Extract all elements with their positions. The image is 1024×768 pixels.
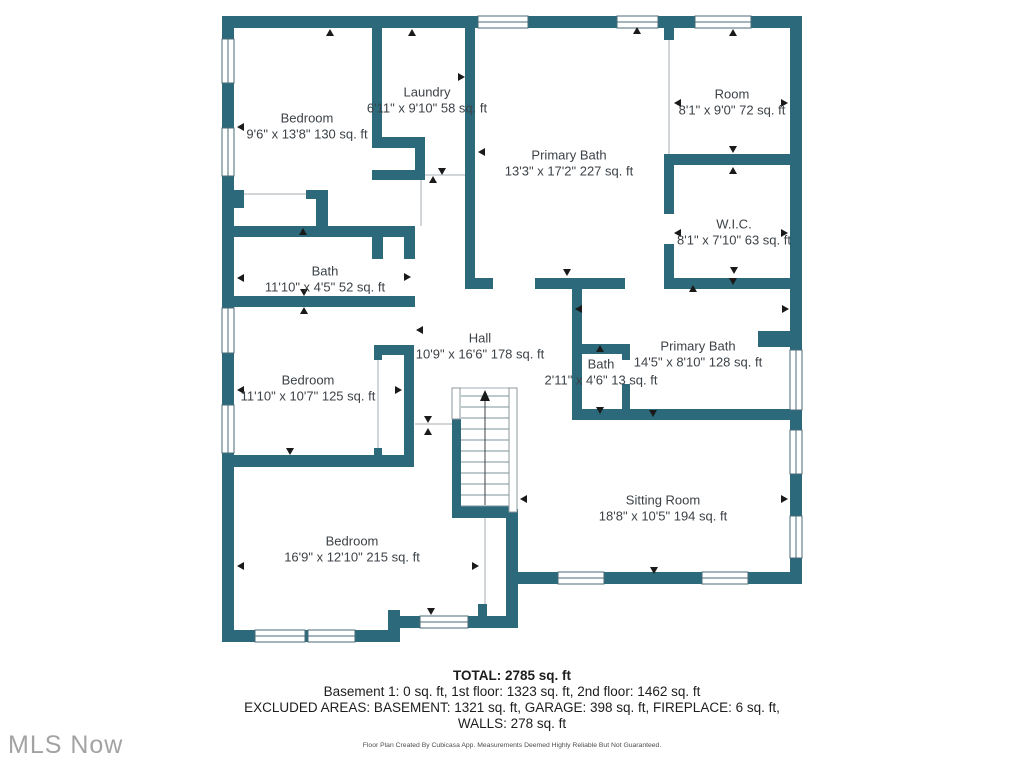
room-name: Laundry: [367, 85, 487, 101]
room-dims: 18'8" x 10'5" 194 sq. ft: [599, 508, 727, 524]
room-dims: 8'1" x 9'0" 72 sq. ft: [679, 102, 786, 118]
room-label-bedroom-bottom-left: Bedroom 16'9" x 12'10" 215 sq. ft: [284, 534, 420, 565]
room-label-sitting-room: Sitting Room 18'8" x 10'5" 194 sq. ft: [599, 493, 727, 524]
room-name: Bedroom: [246, 111, 367, 127]
room-label-bedroom-top-left: Bedroom 9'6" x 13'8" 130 sq. ft: [246, 111, 367, 142]
room-dims: 2'11" x 4'6" 13 sq. ft: [545, 372, 658, 388]
room-name: Bedroom: [284, 534, 420, 550]
room-name: Bath: [265, 264, 385, 280]
room-name: W.I.C.: [677, 217, 791, 233]
room-dims: 16'9" x 12'10" 215 sq. ft: [284, 549, 420, 565]
room-dims: 10'9" x 16'6" 178 sq. ft: [416, 346, 544, 362]
staircase: [452, 388, 517, 512]
room-name: Hall: [416, 331, 544, 347]
room-dims: 11'10" x 10'7" 125 sq. ft: [241, 388, 376, 404]
room-label-primary-bath-small: Primary Bath 14'5" x 8'10" 128 sq. ft: [634, 339, 762, 370]
summary-total: TOTAL: 2785 sq. ft: [0, 668, 1024, 684]
summary-excluded: EXCLUDED AREAS: BASEMENT: 1321 sq. ft, G…: [0, 700, 1024, 716]
room-dims: 9'6" x 13'8" 130 sq. ft: [246, 126, 367, 142]
room-label-hall: Hall 10'9" x 16'6" 178 sq. ft: [416, 331, 544, 362]
room-label-room: Room 8'1" x 9'0" 72 sq. ft: [679, 87, 786, 118]
room-name: Room: [679, 87, 786, 103]
summary-floors: Basement 1: 0 sq. ft, 1st floor: 1323 sq…: [0, 684, 1024, 700]
summary-disclaimer: Floor Plan Created By Cubicasa App. Meas…: [0, 742, 1024, 749]
floor-plan-page: Bedroom 9'6" x 13'8" 130 sq. ft Laundry …: [0, 0, 1024, 768]
room-dims: 11'10" x 4'5" 52 sq. ft: [265, 279, 385, 295]
room-label-wic: W.I.C. 8'1" x 7'10" 63 sq. ft: [677, 217, 791, 248]
room-label-bedroom-mid-left: Bedroom 11'10" x 10'7" 125 sq. ft: [241, 373, 376, 404]
room-name: Sitting Room: [599, 493, 727, 509]
area-summary: TOTAL: 2785 sq. ft Basement 1: 0 sq. ft,…: [0, 668, 1024, 749]
floor-plan-svg: [0, 0, 1024, 768]
room-label-bath-upper: Bath 11'10" x 4'5" 52 sq. ft: [265, 264, 385, 295]
room-dims: 13'3" x 17'2" 227 sq. ft: [505, 163, 633, 179]
summary-walls: WALLS: 278 sq. ft: [0, 716, 1024, 732]
room-dims: 8'1" x 7'10" 63 sq. ft: [677, 232, 791, 248]
mls-watermark: MLS Now: [8, 731, 123, 760]
room-name: Primary Bath: [505, 148, 633, 164]
room-dims: 14'5" x 8'10" 128 sq. ft: [634, 354, 762, 370]
room-name: Bedroom: [241, 373, 376, 389]
room-label-laundry: Laundry 6'11" x 9'10" 58 sq. ft: [367, 85, 487, 116]
room-name: Primary Bath: [634, 339, 762, 355]
room-dims: 6'11" x 9'10" 58 sq. ft: [367, 100, 487, 116]
room-label-primary-bath-large: Primary Bath 13'3" x 17'2" 227 sq. ft: [505, 148, 633, 179]
